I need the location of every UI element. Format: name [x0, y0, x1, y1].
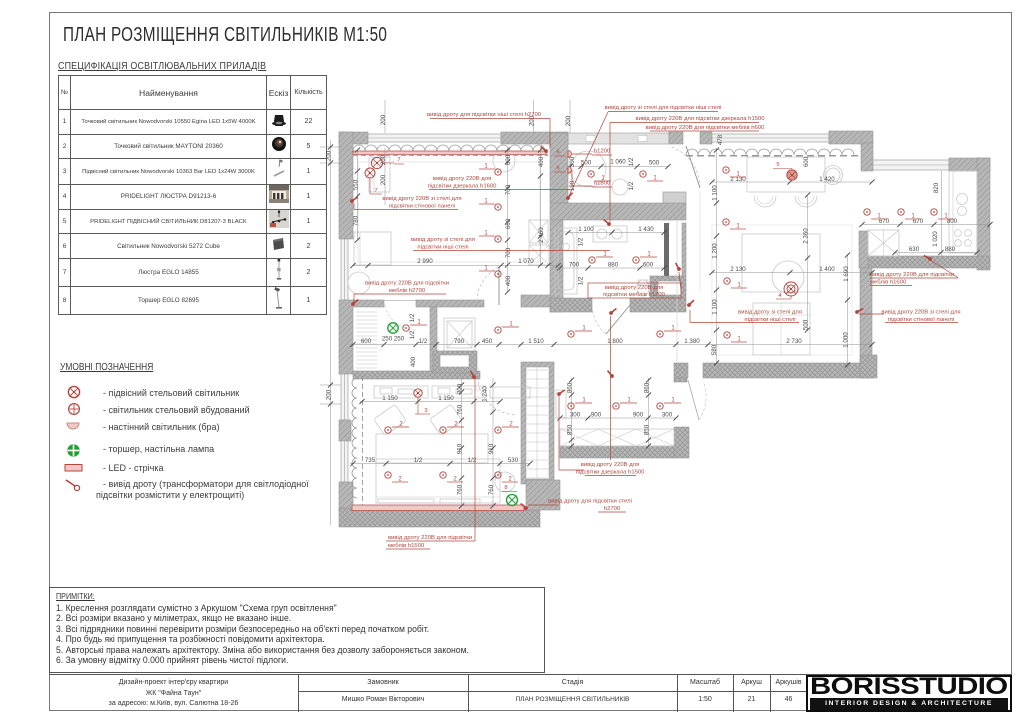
svg-text:підсвітки стінової панелі: підсвітки стінової панелі [389, 204, 455, 210]
svg-text:вивід дроту 220В для підсвітки: вивід дроту 220В для підсвітки [870, 272, 954, 278]
svg-text:1 200: 1 200 [712, 243, 719, 259]
svg-text:600: 600 [361, 338, 372, 345]
svg-text:1/2: 1/2 [578, 237, 585, 246]
svg-text:600: 600 [643, 262, 654, 269]
svg-text:1 100: 1 100 [712, 299, 719, 315]
svg-text:вивід дроту зі стелі для: вивід дроту зі стелі для [738, 310, 802, 316]
svg-text:1 020: 1 020 [932, 231, 939, 247]
svg-text:3: 3 [424, 408, 428, 414]
svg-text:200: 200 [380, 174, 387, 185]
svg-text:підсвітки ніші стелі: підсвітки ніші стелі [417, 245, 468, 251]
svg-text:1: 1 [417, 320, 421, 326]
svg-text:530: 530 [508, 457, 519, 464]
svg-text:1 800: 1 800 [607, 338, 623, 345]
svg-text:1 510: 1 510 [528, 338, 544, 345]
svg-text:850: 850 [644, 424, 651, 435]
svg-text:2 990: 2 990 [417, 258, 433, 265]
svg-text:1 060: 1 060 [610, 159, 626, 166]
svg-text:1: 1 [484, 231, 488, 237]
svg-text:вивід дроту 220В для: вивід дроту 220В для [605, 285, 664, 291]
svg-text:1: 1 [509, 322, 513, 328]
svg-text:меблів h1600: меблів h1600 [870, 280, 907, 286]
svg-text:4: 4 [778, 293, 782, 299]
svg-text:1: 1 [671, 326, 675, 332]
svg-text:550: 550 [353, 179, 360, 190]
svg-text:300: 300 [569, 156, 576, 167]
svg-text:1: 1 [582, 326, 586, 332]
svg-text:1 690: 1 690 [843, 266, 850, 282]
svg-text:1/2: 1/2 [578, 276, 585, 285]
svg-text:1 380: 1 380 [684, 338, 700, 345]
svg-text:1 400: 1 400 [819, 266, 835, 273]
svg-text:1/2: 1/2 [628, 157, 635, 166]
svg-text:1: 1 [737, 337, 741, 343]
svg-text:1 100: 1 100 [712, 185, 719, 201]
svg-text:1: 1 [484, 164, 488, 170]
svg-text:600: 600 [803, 156, 810, 167]
svg-text:300: 300 [570, 412, 581, 419]
svg-text:910: 910 [488, 443, 495, 454]
svg-text:1 240: 1 240 [482, 386, 489, 402]
svg-text:780: 780 [353, 215, 360, 226]
svg-text:200: 200 [326, 150, 333, 161]
svg-text:вивід дроту 220В зі стелі для: вивід дроту 220В зі стелі для [382, 196, 461, 202]
svg-text:500: 500 [649, 160, 660, 167]
svg-text:880: 880 [608, 262, 619, 269]
svg-text:760: 760 [457, 484, 464, 495]
svg-text:700: 700 [505, 247, 512, 258]
svg-text:7: 7 [397, 157, 400, 163]
svg-text:1/2: 1/2 [468, 457, 477, 464]
svg-text:вивід дроту 220В для підсвітки: вивід дроту 220В для підсвітки [388, 535, 472, 541]
svg-text:8: 8 [504, 485, 508, 491]
svg-text:300: 300 [662, 412, 673, 419]
svg-text:820: 820 [933, 182, 940, 193]
svg-text:1 150: 1 150 [382, 395, 398, 402]
svg-text:300: 300 [457, 383, 464, 394]
svg-text:вивід дроту 220В зі стелі для: вивід дроту 220В зі стелі для [881, 310, 960, 316]
svg-text:1/2: 1/2 [628, 181, 635, 190]
svg-text:1: 1 [484, 266, 488, 272]
svg-text:2 460: 2 460 [538, 227, 545, 243]
svg-text:700: 700 [569, 262, 580, 269]
svg-text:1: 1 [603, 252, 607, 258]
svg-text:вивід дроту 220В для: вивід дроту 220В для [433, 176, 492, 182]
svg-text:400: 400 [410, 356, 417, 367]
svg-text:підсвітки меблів h1200: підсвітки меблів h1200 [603, 292, 666, 298]
svg-text:h2700: h2700 [604, 506, 621, 512]
svg-text:1 420: 1 420 [819, 176, 835, 183]
svg-text:500: 500 [803, 319, 810, 330]
svg-text:1 430: 1 430 [638, 226, 654, 233]
svg-text:підсвітки ніші стелі: підсвітки ніші стелі [744, 317, 795, 323]
svg-text:850: 850 [567, 424, 574, 435]
svg-text:2: 2 [508, 477, 512, 483]
svg-text:1: 1 [484, 199, 488, 205]
svg-text:200: 200 [380, 114, 387, 125]
svg-text:1/2: 1/2 [409, 330, 416, 339]
svg-text:400: 400 [538, 156, 545, 167]
svg-text:меблів h2700: меблів h2700 [389, 288, 426, 294]
svg-text:880: 880 [945, 246, 956, 253]
svg-text:1 150: 1 150 [438, 395, 454, 402]
svg-text:2: 2 [398, 477, 402, 483]
svg-text:підсвітки стінової панелі: підсвітки стінової панелі [888, 317, 954, 323]
svg-text:1: 1 [653, 176, 657, 182]
svg-text:250 250: 250 250 [382, 336, 405, 343]
svg-text:1: 1 [736, 224, 740, 230]
svg-text:450: 450 [482, 338, 493, 345]
svg-text:2: 2 [399, 422, 403, 428]
svg-text:меблів h1500: меблів h1500 [388, 543, 425, 549]
svg-text:вивід дроту зі стелі для: вивід дроту зі стелі для [411, 237, 475, 243]
svg-text:вивід дроту 220В для: вивід дроту 220В для [581, 462, 640, 468]
svg-text:630: 630 [909, 246, 920, 253]
svg-text:2: 2 [453, 477, 457, 483]
svg-text:900: 900 [591, 412, 602, 419]
svg-text:2 360: 2 360 [803, 228, 810, 244]
svg-text:200: 200 [565, 115, 572, 126]
svg-text:1: 1 [671, 398, 675, 404]
svg-text:660: 660 [505, 218, 512, 229]
svg-text:підсвітки дзеркала h1600: підсвітки дзеркала h1600 [428, 184, 498, 190]
svg-text:760: 760 [457, 404, 464, 415]
svg-text:580: 580 [711, 344, 718, 355]
svg-text:вивід дроту для підсвітки ніші: вивід дроту для підсвітки ніші стелі h27… [427, 112, 542, 118]
svg-text:вивід дроту для підсвітки стел: вивід дроту для підсвітки стелі [548, 499, 632, 505]
svg-text:вивід дроту 220В для підсвітки: вивід дроту 220В для підсвітки дзеркала … [635, 116, 765, 122]
svg-text:478: 478 [717, 134, 724, 145]
svg-text:600: 600 [505, 154, 512, 165]
svg-text:1 000: 1 000 [843, 332, 850, 348]
svg-text:підсвітки дзеркала h1500: підсвітки дзеркала h1500 [576, 470, 646, 476]
svg-text:2 130: 2 130 [730, 266, 746, 273]
svg-text:1 070: 1 070 [518, 258, 534, 265]
svg-text:900: 900 [633, 412, 644, 419]
svg-text:760: 760 [488, 484, 495, 495]
svg-text:7: 7 [374, 188, 377, 194]
svg-text:h1200: h1200 [594, 149, 611, 155]
svg-text:1: 1 [737, 283, 741, 289]
svg-text:5: 5 [776, 162, 780, 168]
svg-text:1/2: 1/2 [414, 457, 423, 464]
svg-text:400: 400 [505, 275, 512, 286]
svg-text:2: 2 [509, 422, 513, 428]
svg-text:1/2: 1/2 [419, 338, 428, 345]
svg-text:1: 1 [582, 398, 586, 404]
svg-text:1 100: 1 100 [578, 226, 594, 233]
svg-text:735: 735 [365, 457, 376, 464]
svg-text:вивід дроту 220В для підсвітки: вивід дроту 220В для підсвітки [365, 281, 449, 287]
svg-text:2: 2 [454, 422, 458, 428]
svg-text:860: 860 [644, 382, 651, 393]
svg-text:910: 910 [457, 443, 464, 454]
svg-text:200: 200 [326, 389, 333, 400]
svg-text:вивід дроту 220В для підсвітки: вивід дроту 220В для підсвітки меблів h6… [646, 125, 765, 131]
svg-text:1: 1 [647, 252, 651, 258]
svg-text:500: 500 [581, 160, 592, 167]
svg-text:860: 860 [567, 382, 574, 393]
svg-text:вивід дроту зі стелі для підсв: вивід дроту зі стелі для підсвітки ніші … [605, 105, 722, 111]
svg-text:2 730: 2 730 [786, 338, 802, 345]
svg-text:1: 1 [627, 398, 631, 404]
svg-text:1/2: 1/2 [409, 313, 416, 322]
svg-text:790: 790 [454, 338, 465, 345]
